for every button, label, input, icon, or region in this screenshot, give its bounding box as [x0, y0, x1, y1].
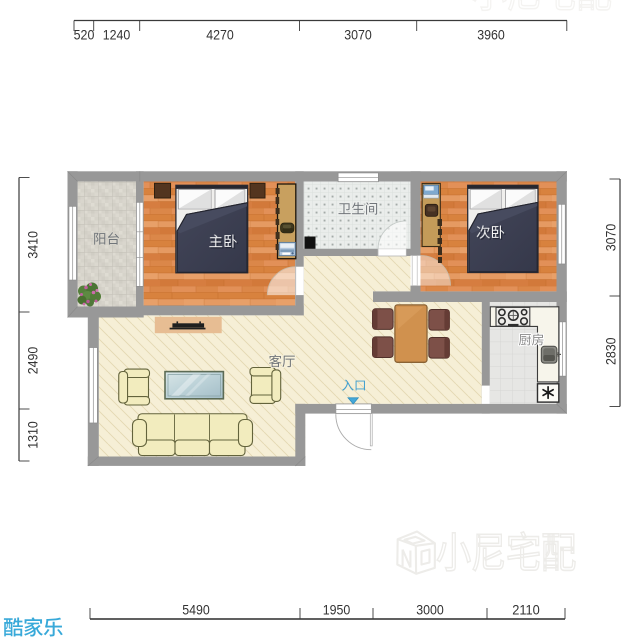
- svg-text:2830: 2830: [603, 337, 619, 365]
- svg-text:3960: 3960: [477, 27, 505, 43]
- svg-text:4270: 4270: [206, 27, 234, 43]
- svg-text:3410: 3410: [25, 231, 41, 259]
- svg-text:3070: 3070: [344, 27, 372, 43]
- svg-text:1310: 1310: [25, 421, 41, 449]
- svg-text:1240: 1240: [103, 27, 131, 43]
- svg-text:3070: 3070: [603, 224, 619, 252]
- svg-text:520: 520: [74, 27, 95, 43]
- svg-text:1950: 1950: [323, 602, 351, 618]
- svg-text:5490: 5490: [182, 602, 210, 618]
- svg-text:2110: 2110: [512, 602, 540, 618]
- svg-text:3000: 3000: [416, 602, 444, 618]
- svg-text:2490: 2490: [25, 347, 41, 375]
